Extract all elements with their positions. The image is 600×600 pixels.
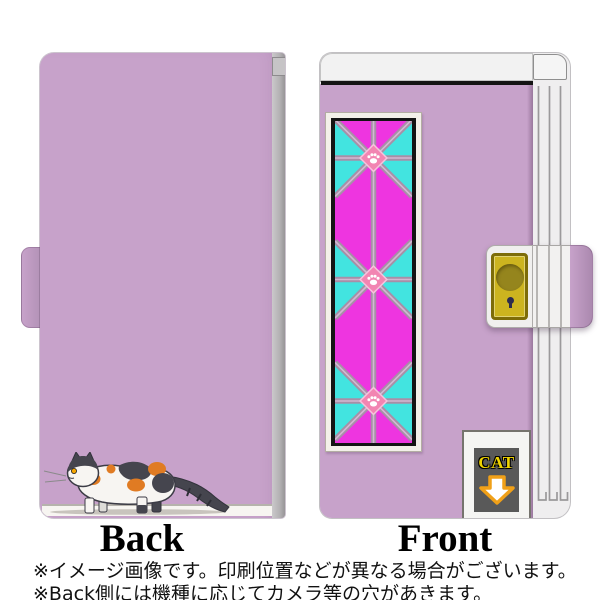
strap-groove-line	[536, 246, 538, 327]
product-photo: CAT Back Front ※イメージ画像です。印刷位置などが異なる場合がござ…	[0, 0, 600, 600]
front-top-bar	[320, 53, 533, 82]
cat-badge-panel: CAT	[474, 448, 519, 512]
stained-glass-window	[325, 112, 422, 452]
front-black-line	[321, 81, 533, 85]
window-pattern	[335, 121, 412, 443]
back-case	[40, 53, 285, 518]
window-black-frame	[331, 118, 416, 446]
back-spine-edge	[272, 53, 285, 518]
clasp-strap	[486, 245, 593, 328]
calico-cat-illustration	[40, 452, 230, 516]
front-label: Front	[325, 516, 565, 556]
strap-groove-line	[560, 246, 562, 327]
clasp-strap-middle	[533, 245, 570, 328]
strap-groove-line	[548, 246, 550, 327]
clasp-strap-tip	[570, 245, 593, 328]
back-camera-notch	[272, 57, 285, 76]
back-label: Back	[36, 516, 248, 556]
snap-button	[496, 264, 524, 291]
cat-badge: CAT	[462, 430, 531, 518]
gold-buckle	[491, 253, 528, 320]
arrow-down-icon	[478, 475, 516, 505]
front-camera-square	[533, 54, 567, 80]
cat-badge-label: CAT	[474, 453, 519, 473]
note-line-2: ※Back側には機種に応じてカメラ等の穴があきます。	[33, 579, 492, 600]
keyhole-icon	[507, 297, 514, 304]
